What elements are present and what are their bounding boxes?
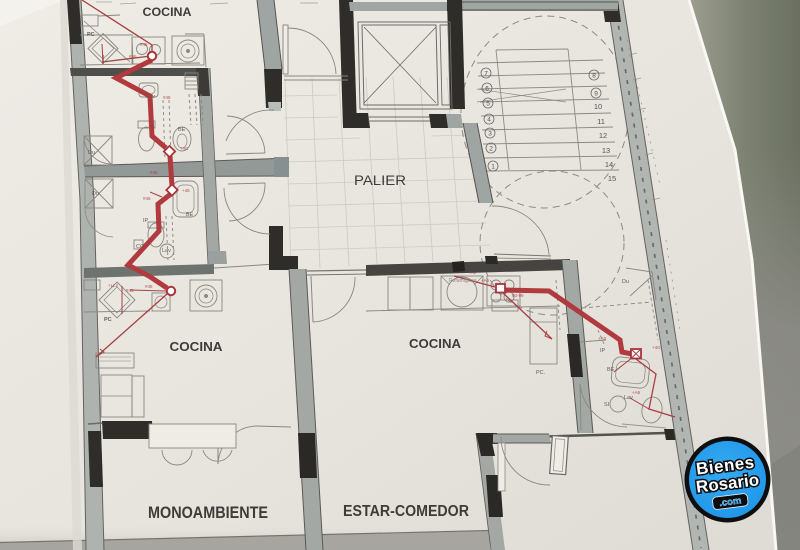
svg-text:SI: SI — [604, 402, 610, 408]
svg-text:IP: IP — [143, 218, 149, 224]
svg-text:+A6: +A6 — [632, 390, 641, 395]
svg-text:COCINA: COCINA — [170, 339, 224, 354]
svg-text:60-99: 60-99 — [512, 293, 524, 298]
svg-text:#45: #45 — [150, 170, 158, 175]
svg-text:2: 2 — [489, 146, 493, 153]
svg-text:Du: Du — [92, 191, 99, 197]
svg-text:PALIER: PALIER — [354, 172, 406, 188]
svg-text:8: 8 — [592, 73, 596, 80]
svg-text:+4C: +4C — [180, 146, 189, 151]
svg-text:BE: BE — [186, 212, 194, 218]
svg-text:Lav: Lav — [162, 248, 171, 254]
svg-text:14: 14 — [605, 160, 613, 169]
svg-text:9: 9 — [594, 91, 598, 98]
svg-text:#45: #45 — [140, 42, 148, 47]
svg-text:11: 11 — [597, 117, 605, 126]
svg-text:COCINA: COCINA — [409, 336, 462, 351]
svg-text:Lav: Lav — [146, 94, 155, 100]
svg-text:13: 13 — [602, 146, 610, 155]
svg-text:PC: PC — [104, 317, 112, 323]
svg-text:PC.: PC. — [536, 370, 546, 376]
svg-text:12: 12 — [599, 131, 607, 140]
svg-text:7: 7 — [484, 71, 488, 78]
svg-text:COCINA: COCINA — [143, 5, 192, 19]
svg-text:IP: IP — [600, 348, 606, 354]
svg-text:5: 5 — [486, 101, 490, 108]
svg-text:#45: #45 — [126, 288, 134, 293]
svg-text:BE: BE — [607, 367, 615, 373]
svg-text:CC: CC — [136, 244, 144, 250]
svg-text:PC: PC — [87, 32, 95, 38]
svg-text:1: 1 — [491, 164, 495, 171]
svg-text:+A0: +A0 — [598, 336, 607, 341]
svg-text:+A1: +A1 — [468, 270, 477, 275]
svg-text:15: 15 — [608, 174, 616, 183]
svg-text:#46: #46 — [129, 54, 137, 59]
svg-text:Lav: Lav — [624, 395, 633, 401]
svg-text:#45: #45 — [145, 284, 153, 289]
svg-text:#48: #48 — [163, 95, 171, 100]
svg-text:4: 4 — [487, 117, 491, 124]
svg-text:Du: Du — [622, 279, 629, 285]
svg-text:+A6: +A6 — [481, 278, 490, 283]
svg-text:BE: BE — [178, 127, 186, 133]
svg-text:3: 3 — [488, 131, 492, 138]
svg-text:+46: +46 — [182, 188, 190, 193]
svg-text:6: 6 — [485, 86, 489, 93]
svg-text:+4G: +4G — [652, 345, 661, 350]
svg-text:ESTAR-COMEDOR: ESTAR-COMEDOR — [343, 503, 469, 520]
svg-text:10: 10 — [594, 102, 602, 111]
svg-text:Du: Du — [88, 150, 95, 156]
svg-text:MONOAMBIENTE: MONOAMBIENTE — [148, 504, 268, 522]
svg-text:Refamqpura: Refamqpura — [449, 278, 477, 284]
svg-text:+LL2: +LL2 — [108, 283, 119, 288]
svg-text:#46: #46 — [143, 196, 151, 201]
